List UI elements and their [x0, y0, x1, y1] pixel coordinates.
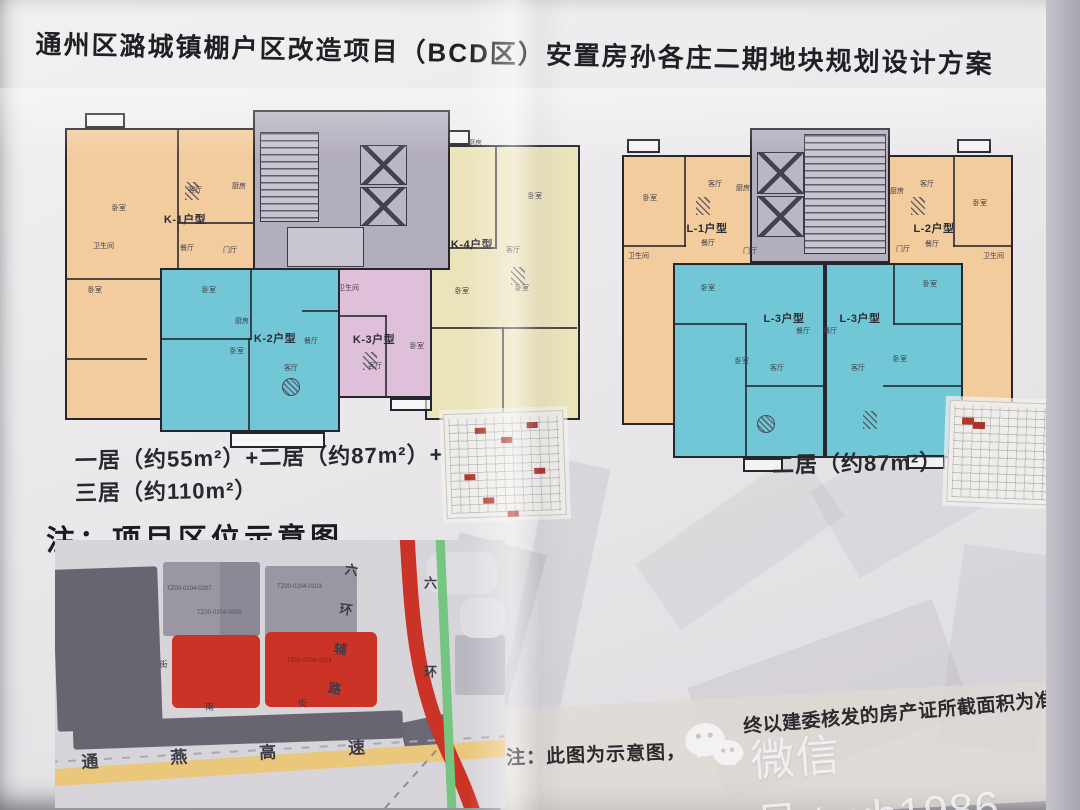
unit-label-l2: L-2户型	[902, 220, 966, 236]
text-label: TZ00-0204-0104	[287, 658, 332, 664]
inner-wall	[745, 385, 825, 387]
inner-wall	[883, 385, 963, 387]
left-plan-caption-line2: 三居（约110m²）	[75, 472, 258, 507]
text-label: 厨房	[468, 140, 482, 147]
inner-wall	[893, 323, 963, 325]
unit-label-k1: K-1户型	[153, 211, 217, 227]
living-room-hatch-icon	[511, 267, 525, 285]
text-label: 客厅	[851, 365, 865, 372]
text-label: 客厅	[284, 365, 298, 372]
text-label: 卧室	[701, 285, 715, 292]
stair-elevator-core	[750, 128, 890, 263]
text-label: 厨房	[235, 318, 249, 325]
inner-wall	[162, 338, 252, 340]
text-label: 餐厅	[796, 328, 810, 335]
balcony	[957, 139, 991, 153]
entry-vestibule	[287, 227, 364, 267]
text-label: 客厅	[368, 363, 382, 370]
text-label: 卫生间	[983, 253, 1004, 260]
text-label: 卧室	[735, 358, 749, 365]
inner-wall	[67, 358, 147, 360]
text-label: 客厅	[708, 181, 722, 188]
text-label: 卧室	[528, 193, 542, 200]
text-label: 卧室	[410, 343, 424, 350]
elevator-icon	[360, 187, 407, 226]
round-table-icon	[282, 378, 300, 396]
inner-wall	[248, 338, 250, 430]
stairs-icon	[804, 134, 886, 254]
text-label: 街	[159, 660, 167, 668]
text-label: 卧室	[893, 356, 907, 363]
text-label: 门厅	[896, 246, 910, 253]
inner-wall	[624, 245, 686, 247]
inner-wall	[745, 323, 747, 458]
elevator-icon	[757, 196, 804, 237]
poster-photo: 通州区潞城镇棚户区改造项目（BCD区）安置房孙各庄二期地块规划设计方案	[0, 0, 1080, 810]
project-location-map: TZ00-0204-0207TZ00-0204-0098TZ00-0204-01…	[55, 540, 505, 808]
round-table-icon	[757, 415, 775, 433]
text-label: 厨房	[232, 183, 246, 190]
unit-label-l1: L-1户型	[675, 220, 739, 236]
text-label: 卧室	[230, 348, 244, 355]
inner-wall	[337, 315, 387, 317]
text-label: 卧室	[973, 200, 987, 207]
poster-title: 通州区潞城镇棚户区改造项目（BCD区）安置房孙各庄二期地块规划设计方案	[35, 24, 1050, 82]
text-label: 餐厅	[180, 245, 194, 252]
text-label: 餐厅	[304, 338, 318, 345]
inner-wall	[385, 315, 387, 397]
unit-l3-left	[673, 263, 825, 458]
unit-label-l3-left: L-3户型	[752, 310, 816, 326]
highlighted-buildings-red	[475, 428, 486, 434]
text-label: 客厅	[770, 365, 784, 372]
unit-label-k3: K-3户型	[342, 331, 406, 347]
elevator-icon	[360, 145, 407, 185]
text-label: 门厅	[223, 247, 237, 254]
text-label: 餐厅	[925, 241, 939, 248]
inner-wall	[302, 310, 340, 312]
unit-label-l3-right: L-3户型	[828, 310, 892, 326]
wechat-eye	[721, 748, 725, 752]
inner-wall	[502, 327, 504, 417]
wechat-icon	[683, 715, 752, 782]
text-label: 卧室	[455, 288, 469, 295]
inner-wall	[495, 147, 497, 247]
text-label: 卧室	[88, 287, 102, 294]
left-plan-caption-line1: 一居（约55m²）+二居（约87m²）+	[75, 437, 444, 475]
road-sixth-ring	[440, 540, 452, 808]
text-label: 卫生间	[338, 285, 359, 292]
inner-wall	[893, 265, 895, 325]
balcony	[85, 113, 125, 128]
text-label: 客厅	[920, 181, 934, 188]
text-label: 客厅	[188, 187, 202, 194]
balcony	[390, 398, 432, 411]
text-label: 卧室	[202, 287, 216, 294]
inner-wall	[675, 323, 747, 325]
text-label: 卫生间	[93, 243, 114, 250]
wechat-eye	[708, 732, 713, 737]
inner-wall	[953, 245, 1013, 247]
text-label: TZ00-0204-0207	[167, 586, 212, 592]
text-label: 卧室	[923, 281, 937, 288]
living-room-hatch-icon	[696, 197, 710, 215]
living-room-hatch-icon	[863, 411, 877, 429]
text-label: 卧室	[112, 205, 126, 212]
right-plan-caption: 二居（约87m²）	[772, 445, 943, 480]
stairs-icon	[260, 132, 319, 222]
elevator-icon	[757, 152, 804, 194]
text-label: 六环	[423, 576, 436, 754]
living-room-hatch-icon	[911, 197, 925, 215]
text-label: TZ00-0204-0103	[277, 584, 322, 590]
text-label: 卧室	[643, 195, 657, 202]
text-label: 客厅	[506, 247, 520, 254]
text-label: TZ00-0204-0098	[197, 610, 242, 616]
unit-label-k2: K-2户型	[243, 330, 307, 346]
text-label: 厨房	[736, 185, 750, 192]
wechat-eye	[730, 748, 734, 752]
highlighted-building-red	[962, 417, 974, 424]
wechat-eye	[696, 734, 701, 739]
text-label: 餐厅	[701, 240, 715, 247]
unit-label-k4: K-4户型	[440, 236, 504, 252]
text-label: 卧室	[515, 285, 529, 292]
site-key-plan-left	[443, 410, 567, 519]
site-plan-grid	[448, 415, 561, 514]
text-label: 厨房	[890, 188, 904, 195]
balcony	[627, 139, 660, 153]
wechat-bubble-small	[712, 739, 744, 767]
stair-elevator-core	[253, 110, 450, 270]
wall-beyond-poster-edge	[1046, 0, 1080, 810]
text-label: 门厅	[743, 248, 757, 255]
unit-k2	[160, 268, 340, 432]
text-label: 餐厅	[823, 328, 837, 335]
text-label: 卫生间	[628, 253, 649, 260]
inner-wall	[177, 130, 179, 280]
